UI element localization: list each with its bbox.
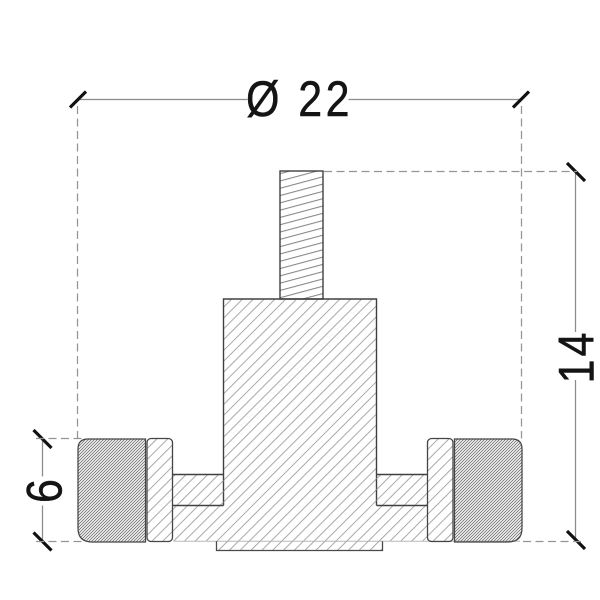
- svg-text:6: 6: [16, 479, 72, 503]
- svg-text:14: 14: [548, 330, 600, 384]
- svg-text:Ø 22: Ø 22: [246, 71, 353, 127]
